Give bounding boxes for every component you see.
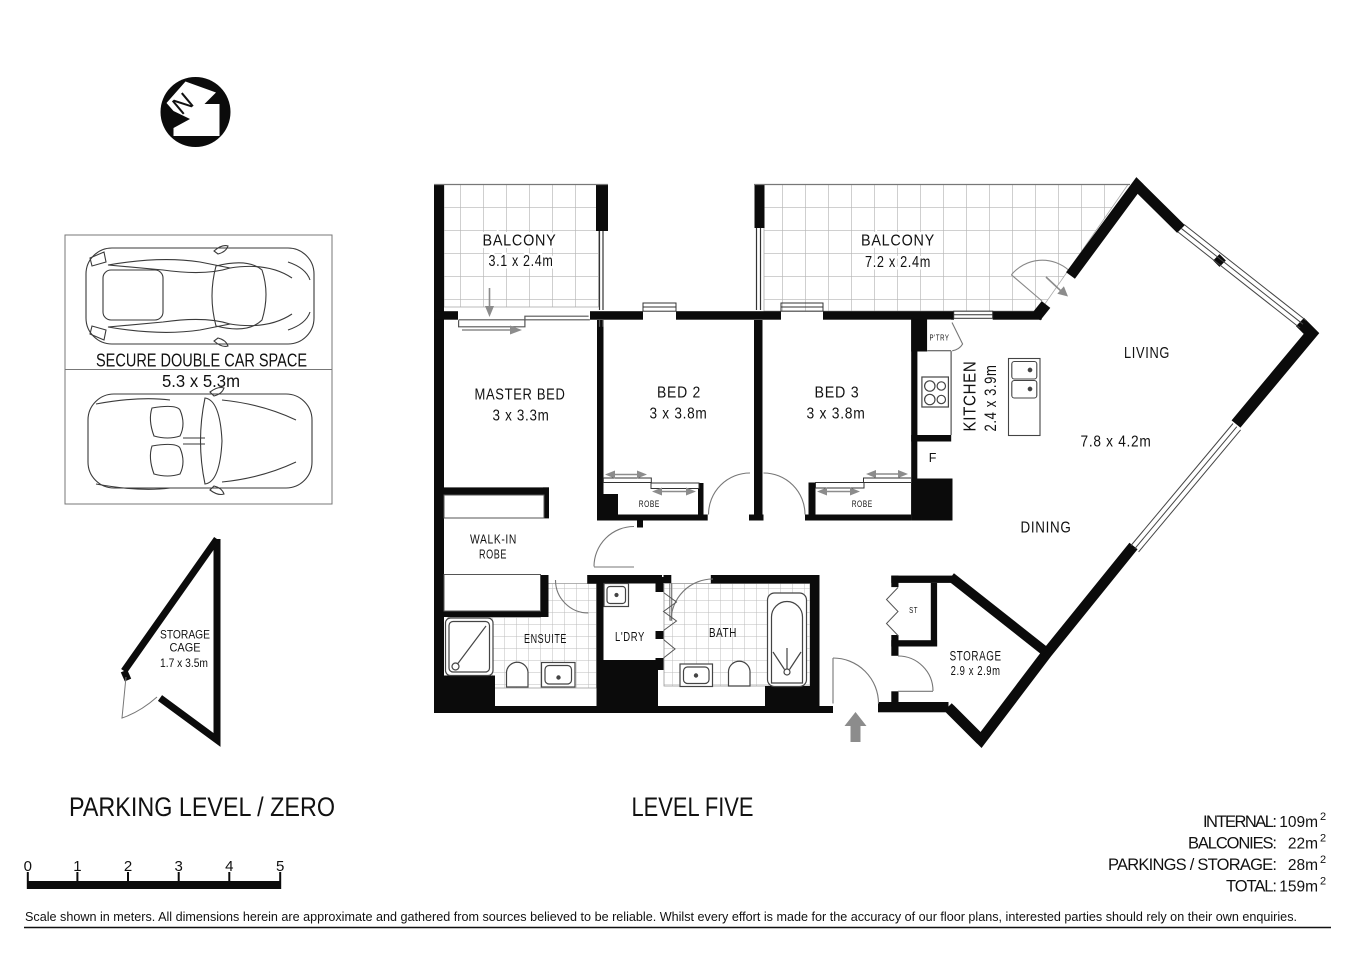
svg-text:3 x 3.8m: 3 x 3.8m xyxy=(650,406,708,423)
svg-text:BALCONIES:: BALCONIES: xyxy=(1188,835,1277,853)
svg-text:7.8 x 4.2m: 7.8 x 4.2m xyxy=(1081,434,1152,451)
svg-text:1: 1 xyxy=(73,858,81,875)
svg-text:BALCONY: BALCONY xyxy=(861,233,935,250)
svg-text:ROBE: ROBE xyxy=(479,547,507,562)
svg-text:INTERNAL:: INTERNAL: xyxy=(1203,813,1277,831)
svg-text:1.7 x 3.5m: 1.7 x 3.5m xyxy=(160,656,208,670)
svg-text:2: 2 xyxy=(1320,854,1326,866)
svg-text:ROBE: ROBE xyxy=(639,499,660,510)
svg-text:ST: ST xyxy=(909,606,918,615)
svg-text:BED 3: BED 3 xyxy=(815,385,860,402)
svg-text:28m: 28m xyxy=(1288,857,1318,874)
svg-text:2.9 x 2.9m: 2.9 x 2.9m xyxy=(951,663,1001,678)
svg-text:PARKINGS / STORAGE:: PARKINGS / STORAGE: xyxy=(1108,856,1277,874)
svg-text:BED 2: BED 2 xyxy=(657,385,701,402)
svg-text:L'DRY: L'DRY xyxy=(615,630,645,644)
svg-text:Scale shown in meters. All dim: Scale shown in meters. All dimensions he… xyxy=(25,909,1297,924)
svg-text:ROBE: ROBE xyxy=(852,499,873,510)
svg-text:22m: 22m xyxy=(1288,836,1318,853)
svg-text:0: 0 xyxy=(24,858,32,875)
svg-text:STORAGE: STORAGE xyxy=(160,628,210,642)
svg-text:109m: 109m xyxy=(1279,814,1318,831)
svg-text:4: 4 xyxy=(225,858,233,875)
svg-text:2: 2 xyxy=(1320,833,1326,845)
svg-text:MASTER BED: MASTER BED xyxy=(475,387,566,404)
svg-text:KITCHEN: KITCHEN xyxy=(960,361,980,432)
svg-text:ENSUITE: ENSUITE xyxy=(524,632,567,646)
svg-text:3 x 3.8m: 3 x 3.8m xyxy=(807,406,866,423)
svg-text:LIVING: LIVING xyxy=(1124,345,1170,362)
svg-text:BATH: BATH xyxy=(709,626,737,640)
svg-text:TOTAL:: TOTAL: xyxy=(1226,878,1277,896)
svg-text:SECURE DOUBLE CAR SPACE: SECURE DOUBLE CAR SPACE xyxy=(96,351,307,371)
svg-text:STORAGE: STORAGE xyxy=(950,649,1002,664)
svg-text:2: 2 xyxy=(1320,811,1326,823)
svg-text:CAGE: CAGE xyxy=(170,641,201,655)
svg-text:3 x 3.3m: 3 x 3.3m xyxy=(493,408,550,425)
svg-text:2: 2 xyxy=(124,858,132,875)
svg-text:2: 2 xyxy=(1320,876,1326,888)
svg-text:5: 5 xyxy=(276,858,284,875)
svg-text:LEVEL FIVE: LEVEL FIVE xyxy=(632,792,754,822)
svg-text:3.1 x 2.4m: 3.1 x 2.4m xyxy=(489,253,554,270)
svg-text:BALCONY: BALCONY xyxy=(483,233,557,250)
svg-text:PARKING LEVEL / ZERO: PARKING LEVEL / ZERO xyxy=(69,792,335,822)
svg-text:7.2 x 2.4m: 7.2 x 2.4m xyxy=(865,254,931,271)
svg-text:2.4 x 3.9m: 2.4 x 3.9m xyxy=(982,365,1000,432)
svg-text:159m: 159m xyxy=(1279,879,1318,896)
svg-text:F: F xyxy=(929,451,937,465)
svg-text:5.3 x 5.3m: 5.3 x 5.3m xyxy=(162,371,240,391)
svg-text:3: 3 xyxy=(175,858,183,875)
svg-text:DINING: DINING xyxy=(1021,520,1072,537)
svg-text:WALK-IN: WALK-IN xyxy=(470,532,517,547)
svg-text:P'TRY: P'TRY xyxy=(930,333,950,343)
